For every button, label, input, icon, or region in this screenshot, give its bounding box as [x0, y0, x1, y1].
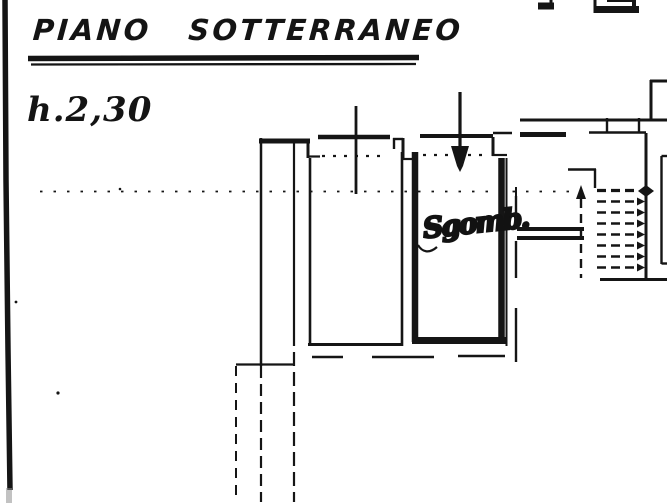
title-underline [28, 58, 419, 65]
stair-treads [597, 191, 645, 272]
left-room [307, 106, 403, 346]
storage-room: Sgomb. [312, 133, 530, 357]
up-arrow-icon [576, 185, 586, 199]
right-edge-bracket [662, 156, 667, 264]
scanned-floor-plan-sheet: PIANO SOTTERRANEO h.2,30 [0, 0, 667, 503]
upper-right-walls [520, 80, 667, 135]
entrance-arrow [451, 92, 469, 172]
scan-edge-artifact [5, 0, 121, 503]
outer-walls-left [236, 138, 310, 502]
down-arrow-icon [451, 146, 469, 172]
section-line [40, 185, 654, 197]
stair-direction-guide [576, 185, 586, 278]
floor-plan-drawing: Sgomb. [0, 0, 667, 503]
staircase [568, 133, 667, 280]
cut-off-fragments [538, 0, 639, 13]
storage-room-label: Sgomb. [421, 201, 530, 245]
